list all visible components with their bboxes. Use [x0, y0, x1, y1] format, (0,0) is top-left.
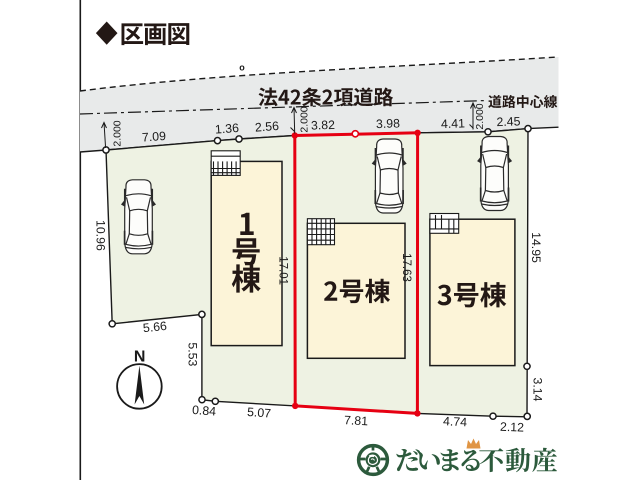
svg-text:7.81: 7.81 — [344, 413, 369, 428]
svg-text:1.36: 1.36 — [215, 121, 240, 137]
svg-text:2.56: 2.56 — [255, 119, 280, 135]
svg-text:4.74: 4.74 — [443, 414, 468, 429]
svg-text:2.000: 2.000 — [298, 106, 310, 132]
svg-text:10.96: 10.96 — [93, 220, 107, 251]
svg-text:14.95: 14.95 — [529, 232, 543, 263]
svg-text:3.14: 3.14 — [530, 378, 544, 402]
svg-text:4.41: 4.41 — [441, 116, 466, 131]
svg-text:2.000: 2.000 — [111, 120, 123, 146]
svg-text:17.63: 17.63 — [400, 253, 412, 282]
svg-text:3.98: 3.98 — [376, 116, 401, 131]
svg-text:2.45: 2.45 — [496, 114, 521, 129]
svg-text:5.53: 5.53 — [185, 342, 199, 366]
svg-text:2.12: 2.12 — [500, 420, 525, 435]
svg-text:3.82: 3.82 — [311, 118, 336, 133]
svg-text:N: N — [134, 349, 146, 366]
svg-text:7.09: 7.09 — [142, 129, 167, 145]
svg-text:2.000: 2.000 — [474, 103, 486, 129]
svg-text:0.84: 0.84 — [192, 403, 217, 419]
svg-text:o: o — [239, 63, 245, 73]
svg-text:5.66: 5.66 — [142, 319, 167, 335]
svg-text:5.07: 5.07 — [247, 405, 272, 421]
svg-text:17.01: 17.01 — [276, 256, 288, 285]
